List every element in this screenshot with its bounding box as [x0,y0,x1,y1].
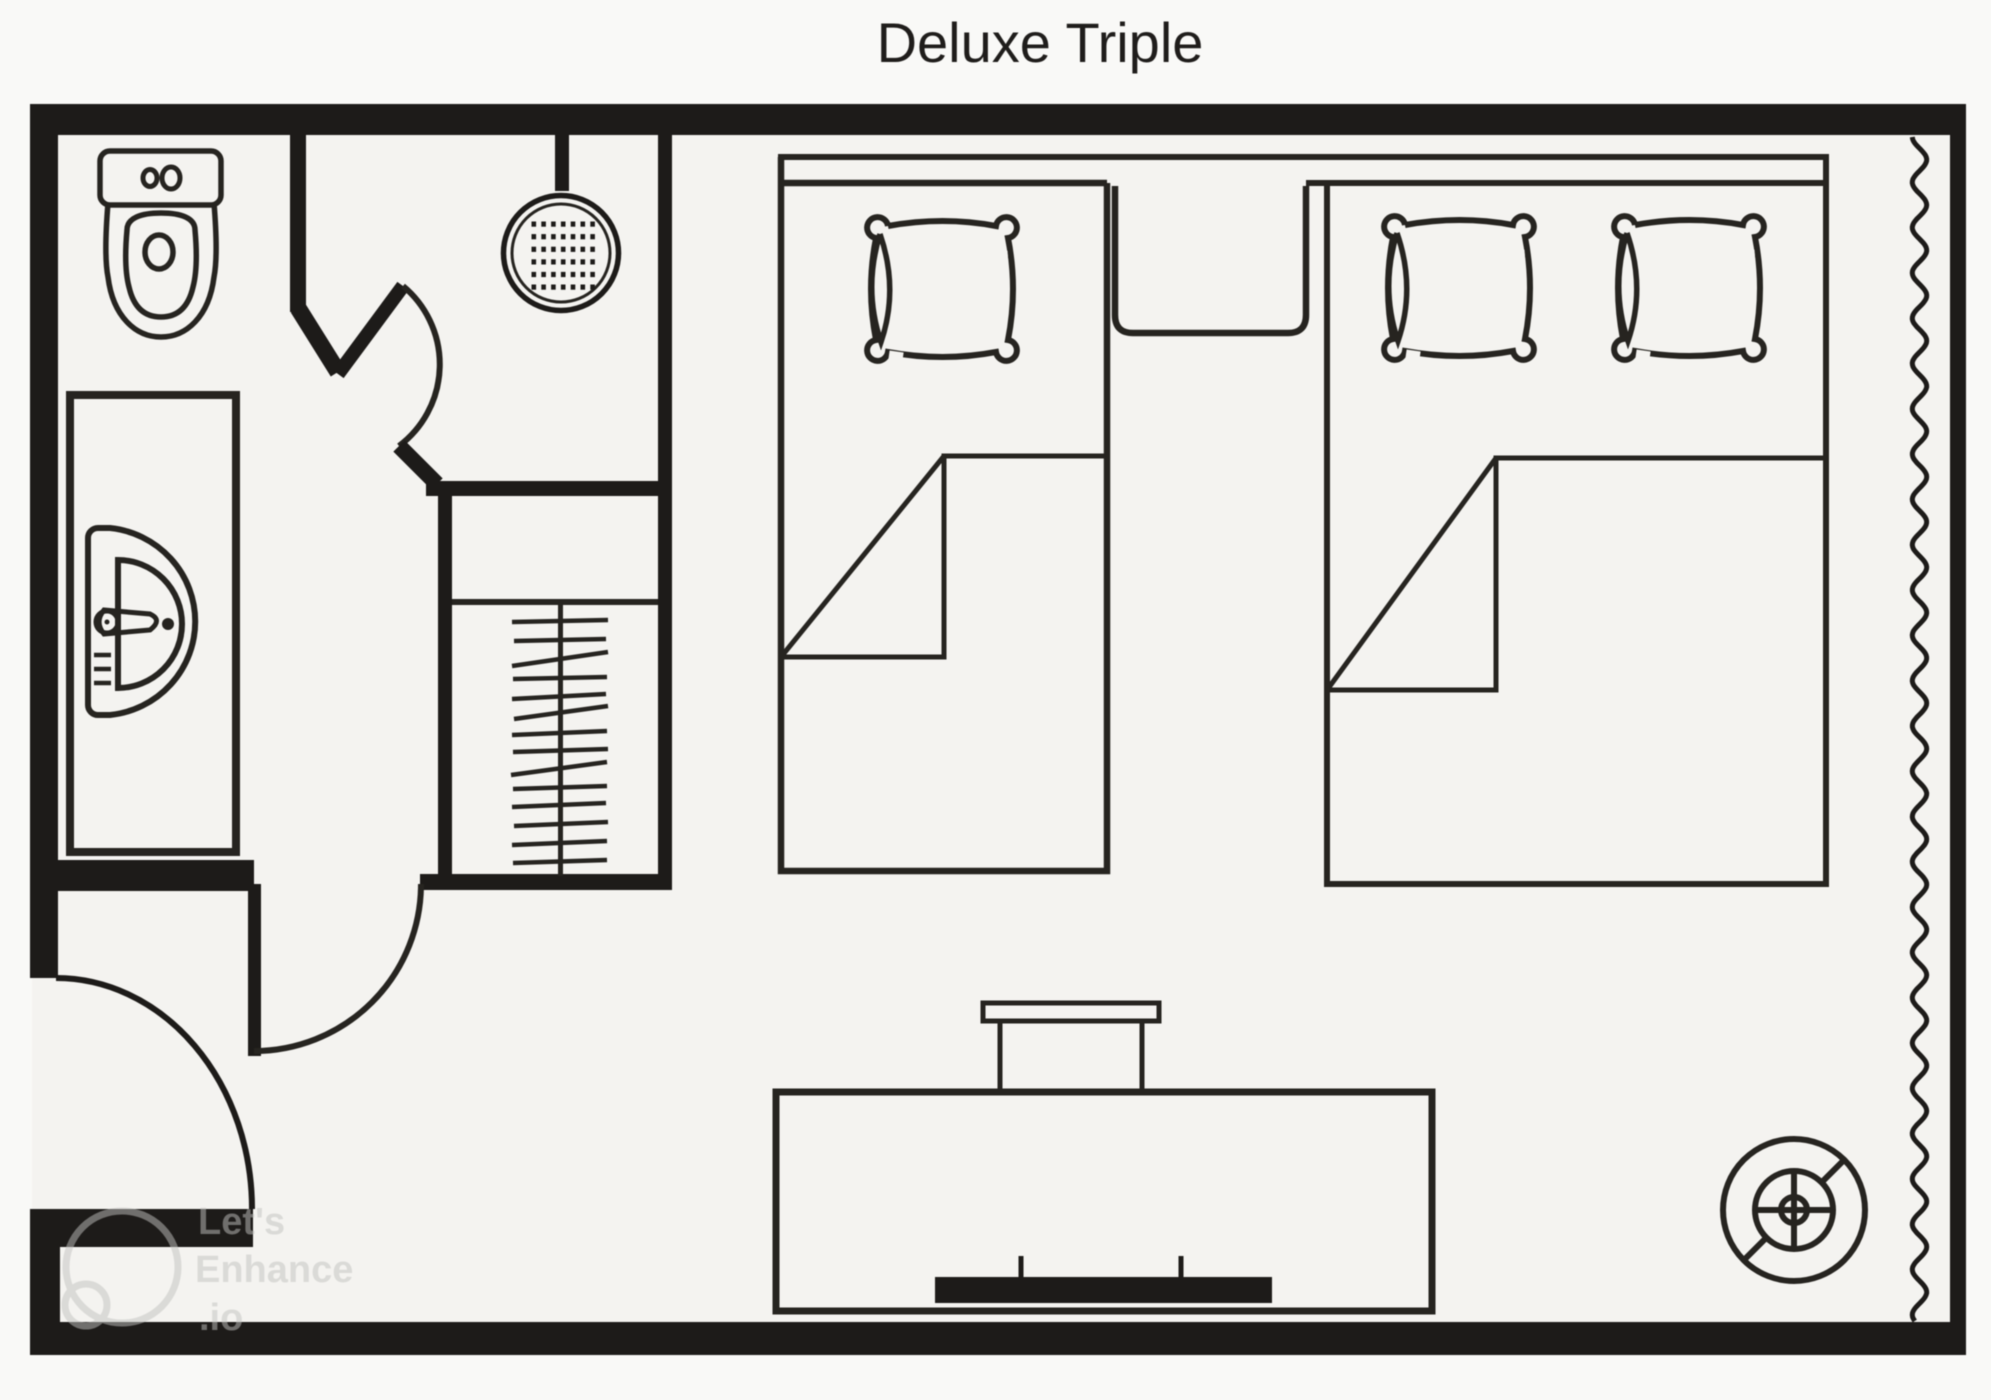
svg-text:.io: .io [199,1297,243,1339]
svg-text:Let's: Let's [198,1201,285,1243]
svg-text:Enhance: Enhance [195,1249,353,1291]
svg-text:Deluxe Triple: Deluxe Triple [877,11,1204,74]
